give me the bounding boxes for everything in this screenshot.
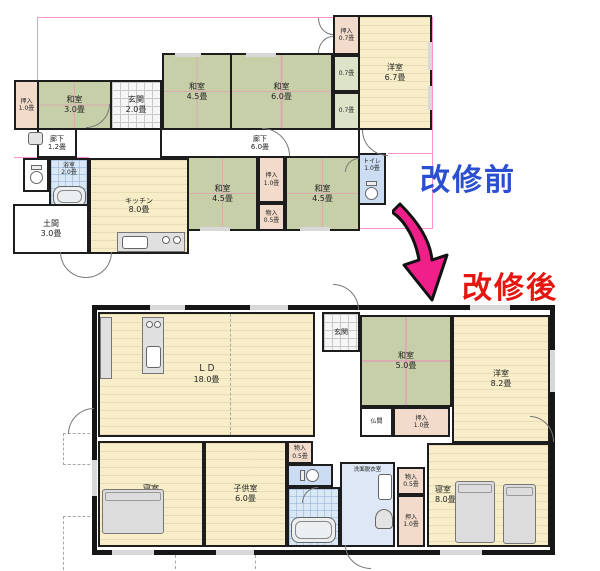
room-name: 土間 [43,219,59,229]
bathtub-icon [291,517,336,543]
room-name: 和室 [189,82,205,92]
room-size: 1.2畳 [48,143,66,151]
room-name: 仏間 [370,418,382,425]
toilet-icon [365,181,378,201]
room-size: 8.0畳 [435,495,456,505]
eave-outline [63,516,95,570]
bed-icon [503,484,536,544]
room-size: 0.7畳 [339,107,355,114]
window-mark [175,53,201,57]
stove-icon [173,236,181,244]
room-ld: ＬＤ 18.0畳 [98,312,315,437]
room-kodomo: 子供室 6.0畳 [204,441,287,547]
kitchen-counter [117,232,185,252]
room-size: 8.2畳 [491,379,512,389]
room-genkan-before: 玄関 2.0畳 [110,80,162,130]
door-arc [318,36,333,53]
transform-arrow-icon [392,202,462,304]
room-size: 18.0畳 [194,375,220,385]
room-size: 6.0畳 [235,494,256,504]
room-washitsu-4-5-a: 和室 4.5畳 [162,53,232,130]
room-yoshitsu-6-7: 洋室 6.7畳 [358,15,432,130]
room-rouka-6-0: 廊下 6.0畳 [160,128,360,158]
room-name: トイレ [363,158,381,165]
toilet-bowl [30,171,43,184]
room-genkan-after: 玄関 [322,312,360,352]
room-oshiire-1-0-after-b: 押入 1.0畳 [397,495,425,547]
eave-outline [63,433,95,465]
room-size: 0.5畳 [264,217,280,224]
room-name: 押入 [20,98,32,105]
window-mark [428,86,432,110]
door-arc [60,252,86,278]
toilet-icon [30,165,43,185]
room-washitsu-5-0: 和室 5.0畳 [360,315,452,407]
room-size: 2.0畳 [126,105,147,115]
room-name: 物入 [265,210,277,217]
room-size: 8.0畳 [129,205,150,215]
room-size: 5.0畳 [396,361,417,371]
toilet-bowl [306,469,319,482]
grid-line [388,153,433,154]
room-monoire-0-5-before: 物入 0.5畳 [258,203,285,231]
door-arc [318,18,333,35]
room-oshiire-0-7: 押入 0.7畳 [333,15,360,55]
sink-icon [122,236,148,249]
toilet-tank [366,181,377,186]
room-monoire-after-a: 物入 0.5畳 [287,441,313,464]
room-size: 1.0畳 [19,105,35,112]
eave-outline [255,555,256,569]
room-shinshitsu-right: 寝室 8.0畳 [427,443,550,547]
room-rouka-1-2: 廊下 1.2畳 [37,128,77,158]
stove-icon [146,321,153,328]
room-size: 6.0畳 [271,92,292,102]
grid-line [37,17,38,80]
window-mark [470,305,510,310]
floorplan-comparison: 押入 1.0畳 和室 3.0畳 玄関 2.0畳 和室 4.5畳 和室 6.0畳 … [0,0,600,571]
window-mark [200,227,230,231]
room-name: 洋室 [387,63,403,73]
window-mark [300,227,330,231]
room-yokushitsu-before: 浴室 2.0畳 [49,158,89,210]
room-size: 2.0畳 [61,169,77,176]
room-name: 浴室 [63,162,75,169]
room-senmen: 洗面脱衣室 [340,462,395,547]
room-size: 3.0畳 [41,229,62,239]
room-size: 0.7畳 [339,35,355,42]
room-washitsu-6-0: 和室 6.0畳 [230,53,333,130]
stove-icon [162,236,170,244]
room-oshiire-1-0-before: 押入 1.0畳 [14,80,39,130]
room-toilet-after [287,464,333,487]
window-mark [550,350,555,392]
window-mark [440,550,482,555]
toilet-icon [300,469,320,482]
room-name: ＬＤ [197,364,215,375]
stove-icon [154,321,161,328]
room-shinshitsu-left: 寝室 8.0畳 [98,441,204,547]
room-name: 物入 [405,474,417,481]
door-arc [68,408,94,434]
window-mark [216,550,254,555]
window-mark [150,305,185,310]
door-arc [333,284,359,310]
room-oshiire-1-0-after-a: 押入 1.0畳 [393,407,450,437]
room-name: 和室 [274,82,290,92]
side-counter [100,317,112,379]
room-size: 0.5畳 [403,481,419,488]
room-name: 和室 [398,351,414,361]
room-name: 子供室 [234,484,258,494]
kitchen-counter [142,317,164,374]
room-name: 押入 [340,28,352,35]
room-size: 3.0畳 [64,105,85,115]
room-size: 4.5畳 [312,194,333,204]
washing-machine-icon [375,509,393,529]
door-arc [345,545,371,569]
window-mark [428,42,432,70]
sink-icon [146,346,161,368]
room-name: 玄関 [128,95,144,105]
bed-icon [102,489,164,534]
room-size: 1.0畳 [414,422,430,429]
room-wc-left-before [23,158,49,192]
after-house-outline: ＬＤ 18.0畳 玄関 和室 5.0畳 洋室 8.2畳 仏間 [92,305,555,555]
bed-icon [455,481,495,543]
label-before-renovation: 改修前 [420,155,516,199]
room-oshiire-1-0-b: 押入 1.0畳 [258,156,285,203]
room-size: 1.0畳 [403,521,419,528]
room-size: 4.5畳 [212,194,233,204]
washbasin-icon [28,132,43,145]
toilet-tank [31,165,42,170]
room-closet-0-7-a: 0.7畳 [333,55,360,92]
window-mark [92,460,97,496]
room-name: キッチン [125,197,153,205]
room-name: 押入 [415,415,427,422]
toilet-bowl [365,187,378,200]
room-butsuma: 仏間 [360,407,393,437]
room-name: 洗面脱衣室 [354,467,382,474]
window-mark [246,53,276,57]
door-arc [86,252,112,278]
room-size: 6.7畳 [385,73,406,83]
label-after-renovation: 改修後 [462,263,558,307]
room-name: 寝室 [435,485,451,495]
room-name: 洋室 [493,369,509,379]
room-doma: 土間 3.0畳 [13,204,89,254]
room-name: 和室 [67,95,83,105]
room-kitchen-before: キッチン 8.0畳 [89,158,189,254]
washbasin-icon [378,474,392,500]
room-size: 1.0畳 [264,180,280,187]
room-name: 和室 [215,184,231,194]
room-name: 押入 [265,172,277,179]
room-name: 押入 [405,514,417,521]
room-toilet-before: トイレ 1.0畳 [358,153,386,205]
room-closet-0-7-b: 0.7畳 [333,92,360,130]
room-size: 0.7畳 [339,70,355,77]
room-size: 0.5畳 [292,453,308,460]
room-washitsu-4-5-b: 和室 4.5畳 [187,156,258,231]
room-name: 和室 [315,184,331,194]
room-size: 1.0畳 [364,165,380,172]
room-size: 4.5畳 [187,92,208,102]
room-name: 玄関 [334,328,348,336]
window-mark [112,550,154,555]
window-mark [250,305,288,310]
toilet-tank [300,470,305,481]
room-name: 廊下 [50,135,64,143]
kitchen-divider-line [230,314,231,435]
eave-outline [175,555,176,569]
room-monoire-after-b: 物入 0.5畳 [397,467,425,495]
room-name: 物入 [294,445,306,452]
